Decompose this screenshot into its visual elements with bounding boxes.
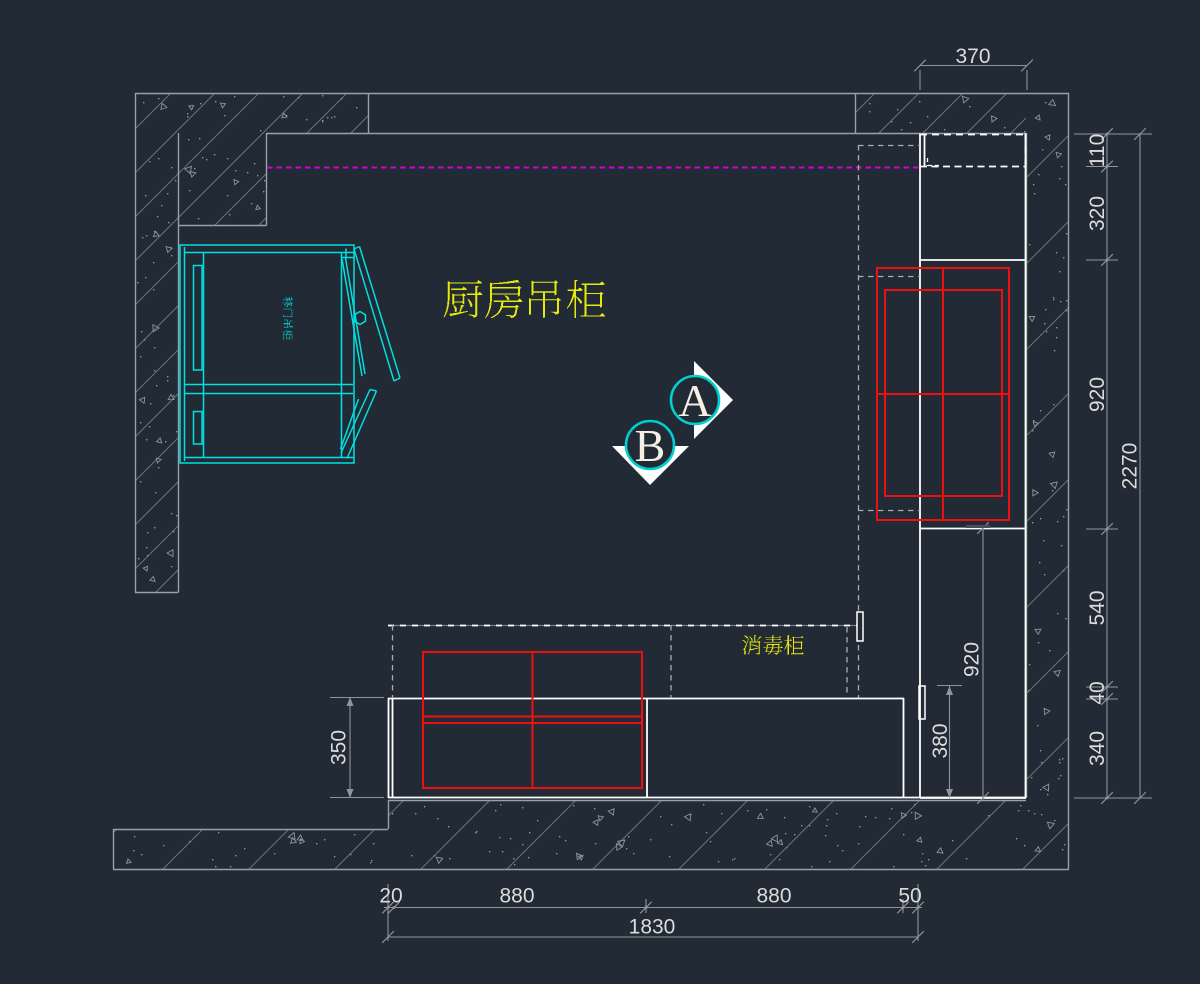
svg-text:920: 920 xyxy=(961,642,984,677)
svg-text:340: 340 xyxy=(1086,731,1109,766)
svg-text:540: 540 xyxy=(1086,590,1109,625)
svg-text:380: 380 xyxy=(929,723,952,758)
svg-text:50: 50 xyxy=(898,885,921,908)
svg-text:350: 350 xyxy=(328,730,351,765)
svg-text:20: 20 xyxy=(379,885,402,908)
svg-text:920: 920 xyxy=(1086,377,1109,412)
svg-text:880: 880 xyxy=(756,885,791,908)
svg-text:320: 320 xyxy=(1086,196,1109,231)
svg-text:880: 880 xyxy=(499,885,534,908)
svg-text:370: 370 xyxy=(955,45,990,68)
svg-text:1830: 1830 xyxy=(629,916,676,939)
svg-text:2270: 2270 xyxy=(1119,443,1142,490)
svg-text:B: B xyxy=(635,420,666,471)
svg-text:A: A xyxy=(678,375,711,426)
svg-text:110: 110 xyxy=(1086,134,1109,167)
svg-text:40: 40 xyxy=(1086,681,1109,704)
